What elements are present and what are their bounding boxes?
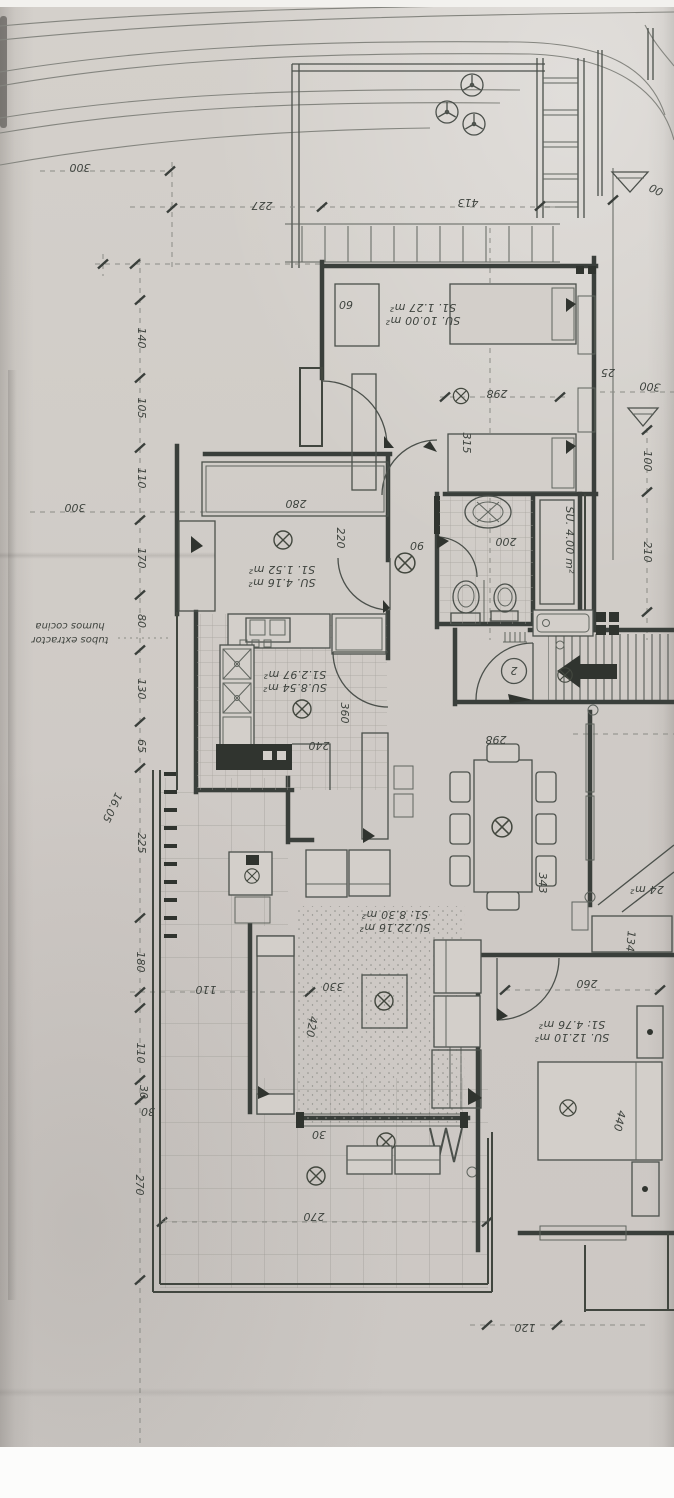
dim-label: 300: [70, 161, 91, 174]
dim-label: 00: [647, 181, 665, 199]
paper-crease: [8, 370, 17, 1300]
svg-text:S1: 8.30 m²: S1: 8.30 m²: [361, 908, 428, 921]
svg-text:S1. 1.27 m²: S1. 1.27 m²: [389, 301, 456, 314]
ceiling-light-icon: [453, 388, 468, 403]
dim-label: 140: [135, 328, 148, 349]
dim-label: 315: [460, 433, 473, 454]
floorplan-drawing: 2: [0, 0, 674, 1498]
svg-text:2: 2: [511, 664, 518, 677]
tree-icon: [463, 113, 485, 135]
dim-label: 30: [137, 1085, 150, 1099]
dim-label: 134: [623, 930, 638, 952]
slope-triangle-icon: [612, 172, 648, 192]
dim-label: 60: [339, 298, 353, 311]
ceiling-light-icon: [492, 817, 512, 837]
svg-text:SU.22.16 m²: SU.22.16 m²: [359, 921, 430, 934]
dim-label: 413: [458, 196, 479, 209]
dim-label: 270: [304, 1210, 325, 1223]
dim-label: 225: [135, 833, 148, 854]
room-label-bedroom-bottom: SU. 12.10 m² S1: 4.76 m²: [534, 1018, 609, 1044]
room-label-dressing: SU. 4.16 m² S1. 1.52 m²: [248, 563, 316, 589]
dim-label: 110: [134, 1043, 147, 1064]
dim-label: 300: [65, 501, 86, 514]
dim-label: 120: [515, 1321, 536, 1334]
svg-text:S1.2.97 m²: S1.2.97 m²: [263, 668, 326, 681]
dim-label: 227: [252, 199, 273, 212]
room-label-living: SU.22.16 m² S1: 8.30 m²: [359, 908, 430, 934]
stair-ladder-icon: [537, 58, 584, 218]
room-label-kitchen: SU.8.54 m² S1.2.97 m²: [263, 668, 327, 694]
dim-label: 65: [135, 739, 148, 753]
photo-top-edge: [0, 0, 674, 7]
armchair: [306, 850, 347, 897]
svg-text:SU.8.54 m²: SU.8.54 m²: [263, 681, 327, 694]
doormat: [503, 632, 527, 642]
dim-label: 110: [135, 468, 148, 489]
svg-text:SU. 12.10 m²: SU. 12.10 m²: [534, 1031, 609, 1044]
dressing-room: [179, 462, 390, 613]
dim-label: 260: [577, 977, 598, 990]
tree-icon: [461, 74, 483, 96]
dim-label: 298: [487, 387, 508, 400]
armchair: [349, 850, 390, 896]
dim-label: 105: [135, 398, 148, 419]
counter: [228, 614, 330, 648]
dim-label: 300: [639, 379, 661, 394]
dining-room: [450, 724, 674, 952]
armchair: [434, 996, 480, 1047]
dim-label: 270: [133, 1175, 146, 1196]
photo-bottom-edge: [0, 1447, 674, 1498]
armchair: [434, 940, 481, 993]
svg-text:SU. 10.00 m²: SU. 10.00 m²: [385, 314, 460, 327]
door-swing-arc: [338, 558, 390, 610]
road-contours: [0, 4, 674, 165]
dim-label: 330: [323, 980, 344, 993]
svg-text:SU. 4.16 m²: SU. 4.16 m²: [248, 576, 316, 589]
svg-text:tubos extractor: tubos extractor: [31, 634, 109, 645]
slope-triangle-icon: [628, 408, 658, 426]
dim-label: 30: [141, 1105, 155, 1118]
dim-label: 298: [486, 733, 507, 746]
dim-label: 210: [641, 542, 654, 563]
dim-label: 240: [309, 739, 330, 752]
dim-label: 16.05: [100, 790, 125, 824]
tree-icon: [436, 101, 458, 123]
dim-label: 360: [338, 703, 351, 724]
dim-label: 100: [641, 451, 654, 472]
room-label-bathroom: SU. 4.00 m²: [563, 506, 576, 574]
svg-text:S1: 4.76 m²: S1: 4.76 m²: [538, 1018, 605, 1031]
door-swing-arc: [476, 643, 533, 700]
dim-label: 280: [286, 497, 307, 510]
dim-label: 110: [196, 983, 217, 996]
entry-number-badge: 2: [502, 659, 527, 684]
roof-diagonals: [598, 845, 674, 912]
floorplan-photo: 2: [0, 0, 674, 1498]
dim-label: 180: [134, 952, 147, 973]
dim-label: 200: [496, 535, 517, 548]
door-swing-arc: [322, 381, 387, 446]
dim-label: 130: [135, 679, 148, 700]
paper-crease: [0, 1388, 674, 1397]
ceiling-light-icon: [274, 531, 292, 549]
closet: [179, 521, 215, 611]
dim-label: 220: [334, 528, 347, 549]
dim-label: 90: [410, 539, 424, 552]
note-extractor: tubos extractor humos cocina: [31, 620, 109, 645]
fridge: [332, 614, 386, 654]
svg-text:S1. 1.52 m²: S1. 1.52 m²: [248, 563, 315, 576]
ceiling-light-icon: [395, 553, 415, 573]
paper-crease: [0, 552, 215, 559]
bathroom: [437, 496, 574, 624]
bed: [538, 1062, 662, 1160]
dim-label: 30: [312, 1128, 326, 1141]
room-label-partial: 24 m²: [630, 883, 664, 896]
bedroom-bottom: [497, 958, 663, 1240]
room-label-bedroom-top: SU. 10.00 m² S1. 1.27 m²: [385, 301, 460, 327]
dim-label: 80: [135, 614, 148, 628]
svg-text:humos cocina: humos cocina: [35, 620, 104, 631]
dim-label: 343: [536, 873, 549, 894]
dim-label: 25: [601, 366, 615, 379]
